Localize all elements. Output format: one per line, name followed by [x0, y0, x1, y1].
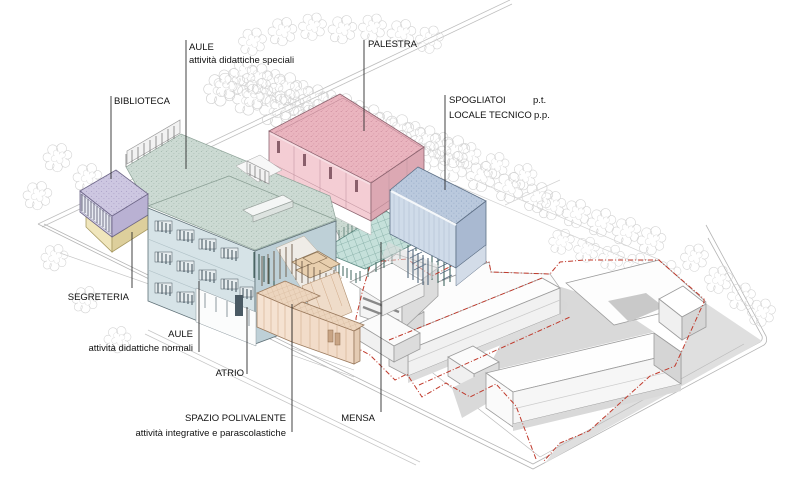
svg-text:p.p.: p.p. [534, 110, 550, 121]
svg-text:SEGRETERIA: SEGRETERIA [68, 292, 130, 303]
svg-text:attività didattiche normali: attività didattiche normali [88, 343, 193, 354]
svg-text:p.t.: p.t. [533, 95, 546, 106]
svg-text:attività integrative e parasco: attività integrative e parascolastiche [136, 428, 287, 439]
svg-text:PALESTRA: PALESTRA [368, 39, 418, 50]
svg-text:SPAZIO POLIVALENTE: SPAZIO POLIVALENTE [185, 413, 286, 424]
svg-text:AULE: AULE [189, 42, 214, 53]
svg-text:ATRIO: ATRIO [216, 368, 244, 379]
svg-text:AULE: AULE [168, 329, 193, 340]
svg-text:SPOGLIATOI: SPOGLIATOI [449, 95, 506, 106]
svg-text:BIBLIOTECA: BIBLIOTECA [114, 96, 171, 107]
svg-text:LOCALE TECNICO: LOCALE TECNICO [449, 110, 532, 121]
svg-text:MENSA: MENSA [341, 413, 375, 424]
svg-text:attività didattiche speciali: attività didattiche speciali [189, 55, 294, 66]
